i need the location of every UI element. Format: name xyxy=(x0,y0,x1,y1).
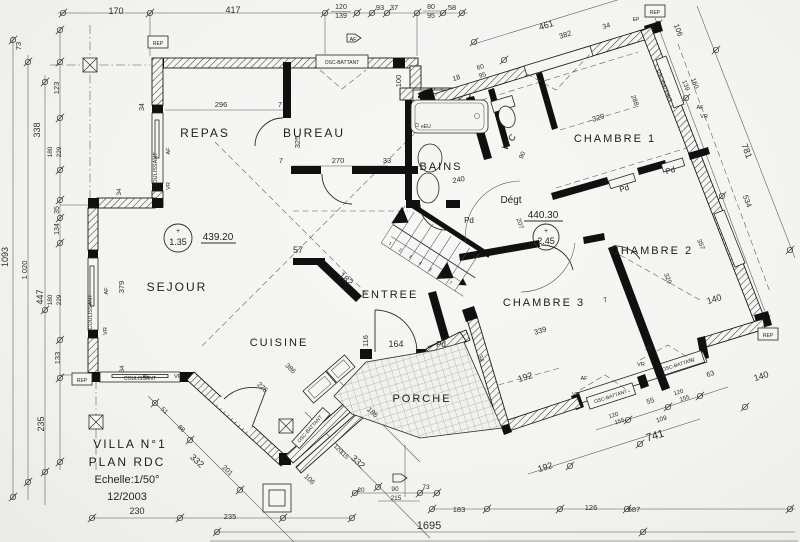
pd-door-label: Pd xyxy=(618,183,630,194)
window-swing-dashes xyxy=(320,70,366,89)
af-label: AF xyxy=(104,287,110,295)
dim-label: 192 xyxy=(536,460,553,474)
dim-label: 116 xyxy=(361,335,370,347)
staircase xyxy=(379,199,491,296)
dim-label: 120 xyxy=(335,4,347,11)
dim-label: 7 xyxy=(603,297,609,305)
dim-label: 33 xyxy=(383,156,391,165)
window-chambre1-north xyxy=(524,46,593,76)
coulissant-label: COULISSANT xyxy=(124,376,156,382)
dim-label: 379 xyxy=(117,281,126,294)
dim-label: 18 xyxy=(452,74,462,83)
dim-label: 51 xyxy=(159,406,169,416)
drain-label: eEU xyxy=(421,124,431,130)
vr-label: VR xyxy=(166,182,172,190)
title-project: VILLA N°1 xyxy=(93,437,167,451)
dim-label: 34 xyxy=(139,103,146,111)
dim-label: 37 xyxy=(390,3,398,12)
dim-label: 215 xyxy=(391,495,402,502)
dim-label: 534 xyxy=(741,194,754,209)
dim-label: 95 xyxy=(427,13,435,20)
vr-label: VR xyxy=(103,327,109,335)
dim-label: 90 xyxy=(518,150,528,160)
dim-label: 140 xyxy=(752,369,769,383)
level-value: 2.45 xyxy=(537,236,555,246)
vr-label: VR xyxy=(572,392,580,398)
dim-label: 73 xyxy=(422,484,430,491)
room-label-entree: ENTREE xyxy=(362,289,419,301)
dimension-labels: 170 417 120 139 93 37 80 95 58 461 382 3… xyxy=(0,3,770,532)
dim-label: 329 xyxy=(662,272,673,285)
dim-label: 229 xyxy=(56,146,63,157)
dim-label: 687 xyxy=(628,505,641,514)
dim-label: 115 xyxy=(338,450,350,461)
dim-label: 417 xyxy=(225,5,240,15)
axis-cross-marker xyxy=(83,58,97,72)
dim-label: 106 xyxy=(672,23,685,38)
dim-label: 90 xyxy=(391,486,399,493)
dim-label: 240 xyxy=(452,174,466,185)
dim-label: 201 xyxy=(220,464,233,477)
dim-label: 1695 xyxy=(417,520,441,532)
dim-label: 180 xyxy=(47,146,54,157)
dim-label: 106 xyxy=(302,473,315,486)
title-plan: PLAN RDC xyxy=(89,455,166,469)
room-label-chambre3: CHAMBRE 3 xyxy=(503,297,585,309)
dim-label: 155 xyxy=(614,418,626,427)
dim-label: 461 xyxy=(537,18,554,32)
dim-label: 296 xyxy=(215,100,228,109)
rep-marker-label: REP xyxy=(650,10,661,16)
dim-label: 58 xyxy=(448,3,456,12)
dim-label: 126 xyxy=(585,503,598,512)
coulissant-label: COULISSANT xyxy=(88,294,94,330)
dim-label: 34 xyxy=(119,365,126,373)
vr-label: VR xyxy=(700,114,708,120)
room-label-porche: PORCHE xyxy=(392,393,451,405)
axis-cross-marker xyxy=(89,415,103,429)
pd-door-label: Pd xyxy=(436,340,446,349)
dim-label: 109 xyxy=(655,415,668,425)
door-arc-chambre3 xyxy=(541,245,573,270)
level-annotations: + 1.35 439.20 + 2.45 440.30 xyxy=(164,210,563,252)
dim-label: 180 xyxy=(47,294,54,305)
rep-marker-label: REP xyxy=(77,378,88,384)
stair-step-number: 5 xyxy=(428,267,433,273)
vr-label: VR xyxy=(174,374,182,380)
af-label: AF xyxy=(645,346,653,352)
dim-label: 235 xyxy=(224,512,237,521)
dim-label: 7 xyxy=(278,102,282,109)
dim-label: 20 xyxy=(357,487,365,494)
pd-door-label: Pd xyxy=(464,216,474,225)
dim-label: 133 xyxy=(53,352,62,365)
dim-label: 123 xyxy=(52,82,61,95)
af-label: AF xyxy=(696,105,704,111)
dim-label: 332 xyxy=(349,453,367,471)
title-block: VILLA N°1 PLAN RDC Echelle:1/50° 12/2003 xyxy=(89,437,167,503)
dim-label: 338 xyxy=(32,122,42,137)
level-plus: + xyxy=(544,228,548,235)
dim-label: 781 xyxy=(739,142,754,160)
level-altitude: 439.20 xyxy=(203,232,234,243)
stair-step-number: 3 xyxy=(408,254,413,260)
room-label-cuisine: CUISINE xyxy=(250,337,309,349)
level-value: 1.35 xyxy=(169,237,187,247)
dim-label: 183 xyxy=(453,505,466,514)
af-label: AF xyxy=(166,147,172,155)
vr-label: VR xyxy=(637,362,645,368)
dim-label: 7 xyxy=(279,158,283,165)
dim-label: 357 xyxy=(695,238,706,251)
af-label: AF xyxy=(142,374,150,380)
dim-label: 229 xyxy=(56,294,63,305)
room-label-chambre1: CHAMBRE 1 xyxy=(574,133,656,145)
dim-label: 382 xyxy=(558,28,573,40)
dim-label: 447 xyxy=(35,289,45,304)
dim-label: 134 xyxy=(54,223,61,235)
af-label: AF xyxy=(349,37,357,43)
room-label-degt: Dégt xyxy=(500,195,521,206)
dim-label: 93 xyxy=(376,3,384,12)
dim-label: 34 xyxy=(116,188,123,196)
dim-label: 329 xyxy=(591,111,606,123)
rep-marker-label: REP xyxy=(763,333,774,339)
dim-label: 139 xyxy=(335,13,347,20)
dim-label: 164 xyxy=(388,339,403,349)
room-label-chambre2: CHAMBRE 2 xyxy=(611,245,693,257)
door-arc-bureau-repas xyxy=(255,118,283,146)
dim-label: 170 xyxy=(108,6,123,16)
dim-label: 332 xyxy=(188,452,206,470)
room-label-sejour: SEJOUR xyxy=(147,280,208,294)
axis-cross-marker xyxy=(279,419,293,433)
dim-label: 1093 xyxy=(0,247,10,267)
dim-label: 57 xyxy=(293,245,303,255)
dim-label: 225 xyxy=(255,381,268,394)
dim-label: 80 xyxy=(427,4,435,11)
dim-label: 741 xyxy=(645,428,666,445)
dim-label: 288 xyxy=(629,94,640,107)
level-plus: + xyxy=(176,228,180,235)
dim-label: 270 xyxy=(332,156,345,165)
floorplan-drawing: 170 417 120 139 93 37 80 95 58 461 382 3… xyxy=(0,0,800,542)
dim-label: 55 xyxy=(646,397,656,406)
dim-label: 155 xyxy=(679,395,691,404)
dim-label: 100 xyxy=(394,75,403,88)
dim-label: 192 xyxy=(516,370,533,384)
door-arc-bureau xyxy=(322,174,352,204)
ep-marker-label: EP xyxy=(633,17,640,23)
stair-step-number: 7 xyxy=(448,280,453,286)
coulissant-label: COULISSANT xyxy=(153,152,159,188)
dim-label: 63 xyxy=(706,370,716,379)
title-scale: Echelle:1/50° xyxy=(95,474,160,486)
dim-label: 230 xyxy=(129,506,144,516)
dim-label: 73 xyxy=(14,42,23,50)
floorplan-scan: 170 417 120 139 93 37 80 95 58 461 382 3… xyxy=(0,0,800,542)
dim-label: 34 xyxy=(602,22,612,31)
level-altitude: 440.30 xyxy=(528,210,559,221)
title-date: 12/2003 xyxy=(107,491,147,503)
dim-label: 339 xyxy=(533,324,548,336)
dim-label: 386 xyxy=(283,362,296,375)
room-label-repas: REPAS xyxy=(180,126,230,140)
dim-label: 235 xyxy=(36,416,46,431)
rep-marker-label: REP xyxy=(153,41,164,47)
dim-label: 207 xyxy=(514,217,524,230)
osc-battant-label: OSC-BATTANT xyxy=(325,60,360,66)
dim-label: 35 xyxy=(54,206,61,214)
room-label-bains: BAINS xyxy=(419,161,462,173)
dim-label: 140 xyxy=(705,292,722,306)
washbasin xyxy=(417,173,439,203)
dim-label: 1 020 xyxy=(20,261,29,280)
af-label: AF xyxy=(580,376,588,382)
room-label-bureau: BUREAU xyxy=(283,126,345,140)
